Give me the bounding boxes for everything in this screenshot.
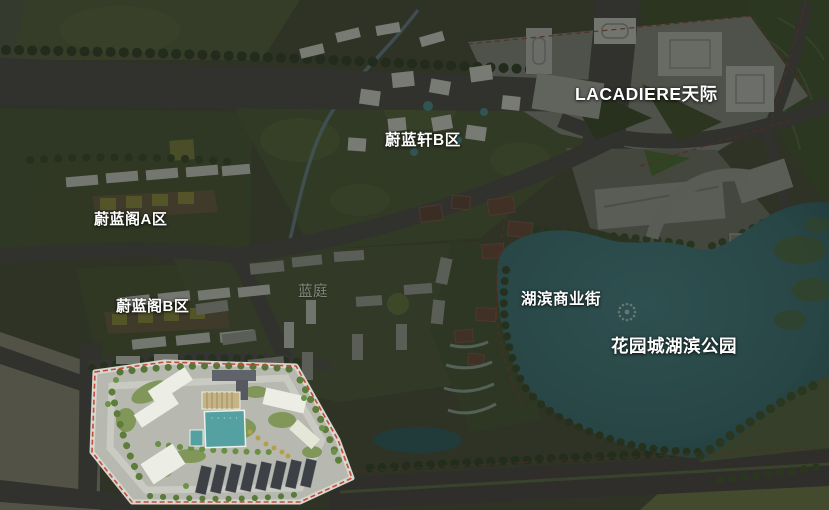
north-podium-building — [212, 370, 256, 381]
masterplan-screenshot: LACADIERE天际 蔚蓝轩B区 蔚蓝阁A区 蔚蓝阁B区 蓝庭 湖滨商业街 花… — [0, 0, 829, 510]
label-lanting: 蓝庭 — [298, 285, 328, 300]
label-hubin-shangyejie: 湖滨商业街 — [521, 292, 601, 308]
label-weilange-a: 蔚蓝阁A区 — [94, 212, 167, 227]
clubhouse-grid-roof — [202, 392, 240, 409]
label-lacadiere-tianji: LACADIERE天际 — [575, 86, 718, 104]
label-weilanxuan-b: 蔚蓝轩B区 — [385, 133, 461, 149]
masterplan-rendering — [0, 0, 829, 510]
label-weilange-b: 蔚蓝阁B区 — [116, 299, 189, 314]
label-huayuancheng-hubin-gongyuan: 花园城湖滨公园 — [611, 338, 737, 356]
